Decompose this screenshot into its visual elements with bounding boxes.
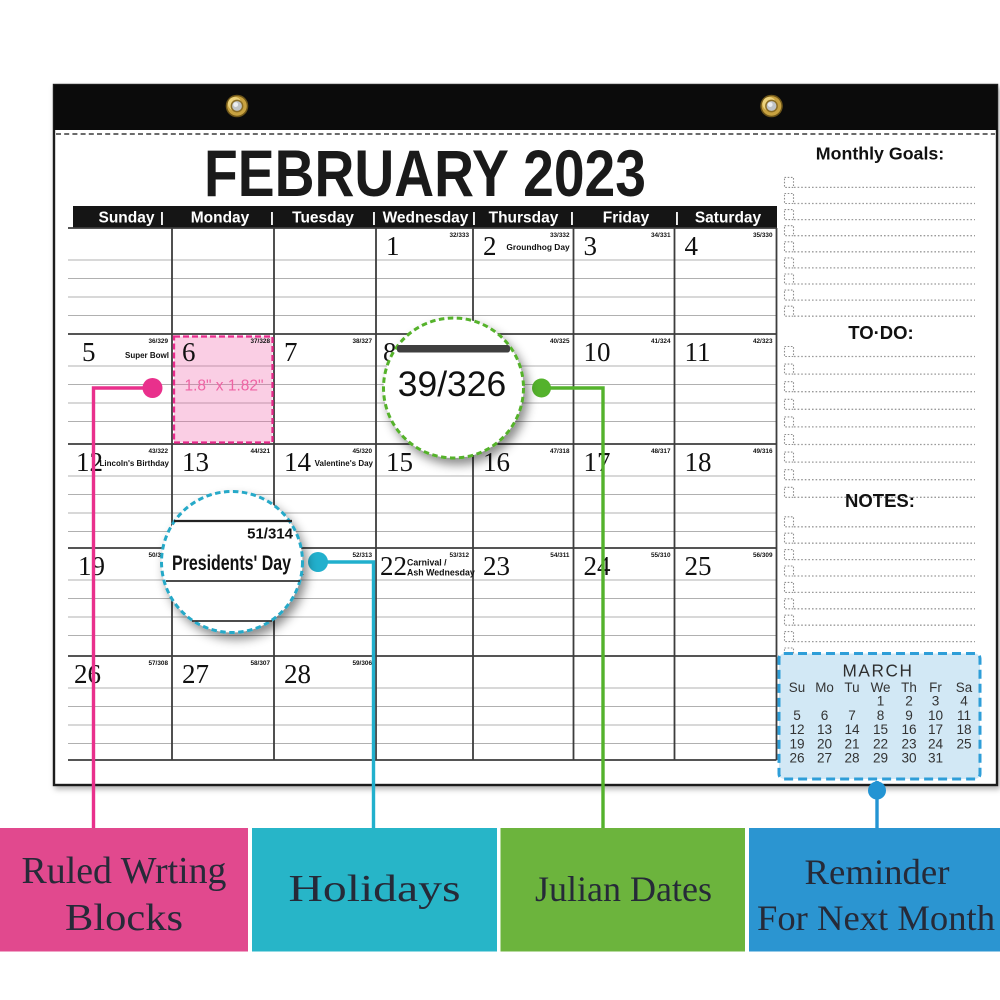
svg-text:7: 7 [284,337,298,367]
svg-text:Holidays: Holidays [289,868,461,910]
svg-text:FEBRUARY 2023: FEBRUARY 2023 [204,136,646,210]
svg-text:3: 3 [932,694,940,709]
svg-text:22: 22 [380,551,407,581]
svg-text:Mo: Mo [815,680,834,695]
svg-text:For Next Month: For Next Month [757,898,995,938]
svg-text:Monday: Monday [191,210,250,227]
svg-text:5: 5 [82,337,96,367]
svg-text:55/310: 55/310 [651,552,671,559]
svg-text:35/330: 35/330 [753,232,773,239]
svg-text:14: 14 [284,447,312,477]
svg-text:37/328: 37/328 [250,338,270,345]
svg-text:16: 16 [483,447,510,477]
svg-text:42/323: 42/323 [753,338,773,345]
svg-text:Wednesday: Wednesday [383,210,469,227]
svg-text:2: 2 [905,694,913,709]
svg-text:36/329: 36/329 [148,338,168,345]
svg-text:6: 6 [182,337,196,367]
svg-text:17: 17 [584,447,611,477]
svg-text:13: 13 [182,447,209,477]
svg-text:3: 3 [584,231,598,261]
svg-text:|: | [675,209,679,225]
svg-text:40/325: 40/325 [550,338,570,345]
svg-text:18: 18 [685,447,712,477]
svg-text:Julian Dates: Julian Dates [535,869,712,909]
svg-text:12: 12 [789,722,804,737]
svg-text:47/318: 47/318 [550,448,570,455]
svg-text:MARCH: MARCH [842,661,913,681]
svg-text:19: 19 [789,736,804,751]
svg-text:19: 19 [78,551,105,581]
svg-text:11: 11 [685,337,711,367]
svg-text:28: 28 [284,659,311,689]
svg-text:Thursday: Thursday [489,210,559,227]
svg-text:15: 15 [386,447,413,477]
svg-text:41/324: 41/324 [651,338,671,345]
svg-text:53/312: 53/312 [449,552,469,559]
svg-text:8: 8 [877,708,885,723]
svg-text:29: 29 [873,751,888,766]
svg-text:10: 10 [584,337,611,367]
svg-text:TO·DO:: TO·DO: [848,322,913,343]
svg-text:5: 5 [793,708,801,723]
svg-text:51/314: 51/314 [247,526,294,543]
svg-text:Blocks: Blocks [65,897,183,939]
svg-text:Super Bowl: Super Bowl [125,351,169,360]
svg-text:|: | [472,209,476,225]
svg-text:27: 27 [817,751,832,766]
svg-text:28: 28 [844,751,859,766]
svg-text:1: 1 [877,694,885,709]
svg-text:54/311: 54/311 [550,552,570,559]
svg-text:38/327: 38/327 [352,338,372,345]
svg-text:11: 11 [957,708,971,723]
svg-text:Ash Wednesday: Ash Wednesday [407,568,475,578]
svg-text:14: 14 [844,722,860,737]
svg-text:20: 20 [817,736,833,751]
svg-text:24: 24 [928,736,944,751]
svg-text:26: 26 [74,659,101,689]
svg-text:33/332: 33/332 [550,232,570,239]
svg-text:57/308: 57/308 [148,660,168,667]
svg-text:Reminder: Reminder [805,852,950,892]
svg-text:15: 15 [873,722,888,737]
svg-text:Lincoln's Birthday: Lincoln's Birthday [100,459,170,468]
svg-text:7: 7 [848,708,856,723]
svg-text:58/307: 58/307 [250,660,270,667]
svg-text:23: 23 [483,551,510,581]
svg-text:Friday: Friday [603,210,650,227]
svg-text:Sunday: Sunday [99,210,155,227]
svg-text:49/316: 49/316 [753,448,773,455]
svg-text:1.8" x 1.82": 1.8" x 1.82" [184,378,263,395]
svg-text:10: 10 [928,708,944,723]
svg-text:27: 27 [182,659,209,689]
svg-text:22: 22 [873,736,888,751]
svg-text:|: | [160,209,164,225]
svg-text:2: 2 [483,231,497,261]
svg-text:59/306: 59/306 [352,660,372,667]
svg-text:Carnival /: Carnival / [407,558,447,568]
svg-text:4: 4 [685,231,699,261]
svg-text:|: | [372,209,376,225]
svg-text:9: 9 [905,708,913,723]
svg-text:39/326: 39/326 [398,364,507,404]
svg-text:4: 4 [960,694,968,709]
svg-text:Presidents' Day: Presidents' Day [172,551,291,575]
svg-text:43/322: 43/322 [148,448,168,455]
svg-text:48/317: 48/317 [651,448,671,455]
svg-text:|: | [570,209,574,225]
svg-text:30: 30 [901,751,917,766]
svg-text:45/320: 45/320 [352,448,372,455]
svg-text:Valentine's Day: Valentine's Day [315,459,374,468]
svg-text:|: | [270,209,274,225]
svg-text:32/333: 32/333 [449,232,469,239]
svg-text:24: 24 [584,551,612,581]
svg-text:31: 31 [928,751,943,766]
svg-text:56/309: 56/309 [753,552,773,559]
svg-text:23: 23 [901,736,916,751]
svg-text:18: 18 [956,722,971,737]
svg-text:13: 13 [817,722,832,737]
svg-text:Monthly Goals:: Monthly Goals: [816,144,944,164]
svg-text:6: 6 [821,708,829,723]
svg-text:25: 25 [685,551,712,581]
svg-text:1: 1 [386,231,400,261]
svg-text:Groundhog Day: Groundhog Day [506,242,570,252]
svg-text:Tuesday: Tuesday [292,210,354,227]
svg-text:16: 16 [901,722,916,737]
svg-text:17: 17 [928,722,943,737]
svg-text:34/331: 34/331 [651,232,671,239]
svg-text:25: 25 [956,736,971,751]
svg-text:Tu: Tu [844,680,859,695]
svg-text:21: 21 [844,736,859,751]
svg-text:52/313: 52/313 [352,552,372,559]
svg-text:44/321: 44/321 [250,448,270,455]
svg-text:26: 26 [789,751,804,766]
svg-text:Su: Su [789,680,805,695]
svg-text:NOTES:: NOTES: [845,490,915,511]
svg-text:Ruled Wrting: Ruled Wrting [22,850,227,892]
svg-text:Saturday: Saturday [695,210,762,227]
